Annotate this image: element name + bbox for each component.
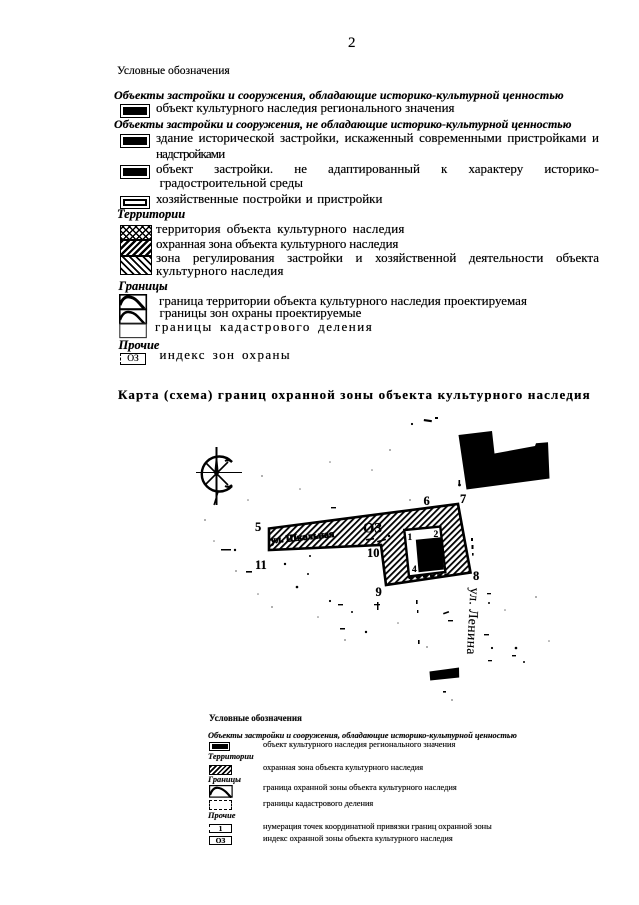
svg-text:8: 8 xyxy=(473,569,479,583)
svg-text:6: 6 xyxy=(424,494,430,508)
svg-text:ул. Ленина: ул. Ленина xyxy=(464,587,483,655)
svg-text:7: 7 xyxy=(460,492,466,506)
svg-text:5: 5 xyxy=(255,520,261,534)
svg-text:1: 1 xyxy=(408,533,413,543)
svg-text:9: 9 xyxy=(376,585,382,599)
svg-text:10: 10 xyxy=(367,546,380,560)
svg-text:11: 11 xyxy=(255,558,267,572)
svg-text:2: 2 xyxy=(434,530,439,540)
svg-text:4: 4 xyxy=(412,565,417,575)
svg-text:ОЗ: ОЗ xyxy=(363,521,382,537)
